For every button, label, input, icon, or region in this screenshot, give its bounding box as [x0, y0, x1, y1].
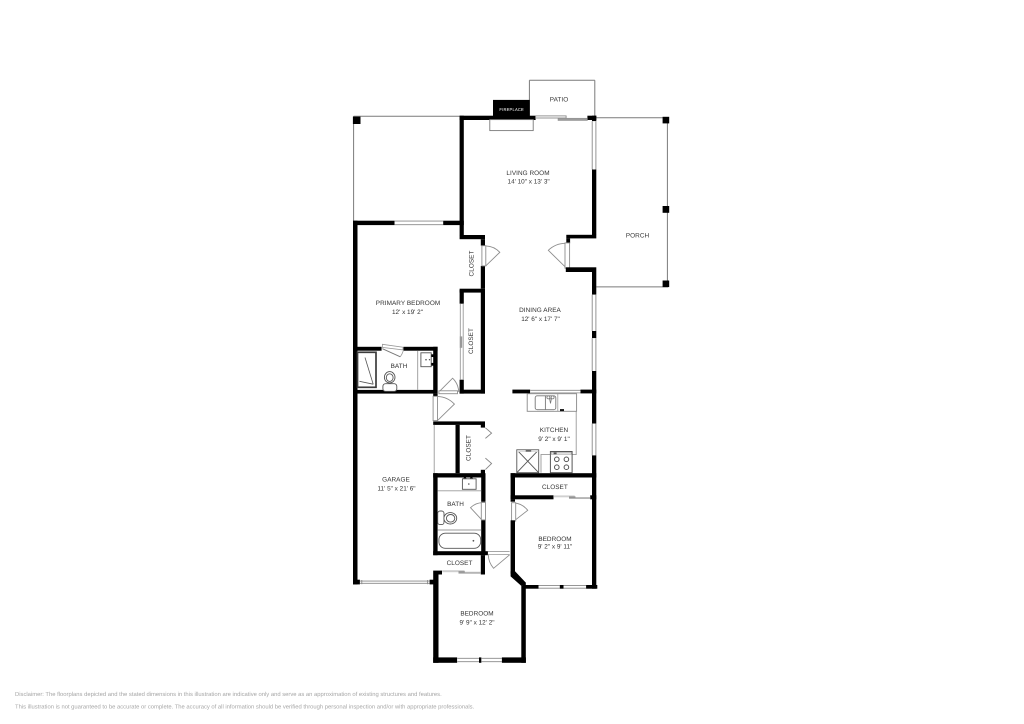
- svg-text:PATIO: PATIO: [550, 97, 568, 104]
- svg-text:14' 10" x 13' 3": 14' 10" x 13' 3": [508, 178, 550, 185]
- svg-text:11' 5" x 21' 6": 11' 5" x 21' 6": [377, 486, 415, 493]
- svg-text:9' 9" x 12' 2": 9' 9" x 12' 2": [459, 619, 494, 626]
- svg-text:KITCHEN: KITCHEN: [540, 427, 569, 434]
- svg-text:12' x 19' 2": 12' x 19' 2": [392, 309, 423, 316]
- svg-text:CLOSET: CLOSET: [468, 328, 475, 354]
- svg-text:BEDROOM: BEDROOM: [538, 536, 571, 543]
- svg-text:This illustration is not guara: This illustration is not guaranteed to b…: [15, 704, 475, 711]
- svg-text:CLOSET: CLOSET: [542, 484, 568, 491]
- svg-text:LIVING ROOM: LIVING ROOM: [506, 170, 549, 177]
- svg-text:PRIMARY BEDROOM: PRIMARY BEDROOM: [376, 300, 440, 307]
- svg-text:CLOSET: CLOSET: [469, 251, 476, 277]
- svg-text:9' 2" x 9' 11": 9' 2" x 9' 11": [538, 544, 573, 551]
- svg-text:DINING AREA: DINING AREA: [519, 307, 561, 314]
- svg-text:GARAGE: GARAGE: [382, 477, 410, 484]
- svg-text:CLOSET: CLOSET: [466, 435, 473, 461]
- svg-text:12' 6" x 17' 7": 12' 6" x 17' 7": [521, 316, 560, 323]
- svg-text:FIREPLACE: FIREPLACE: [499, 107, 524, 112]
- svg-text:Disclaimer: The floorplans dep: Disclaimer: The floorplans depicted and …: [15, 691, 442, 698]
- svg-text:9' 2" x 9' 1": 9' 2" x 9' 1": [538, 436, 570, 443]
- svg-text:BEDROOM: BEDROOM: [460, 610, 493, 617]
- svg-text:PORCH: PORCH: [626, 233, 650, 240]
- svg-text:CLOSET: CLOSET: [447, 560, 473, 567]
- svg-text:BATH: BATH: [447, 501, 464, 508]
- svg-text:BATH: BATH: [391, 363, 408, 370]
